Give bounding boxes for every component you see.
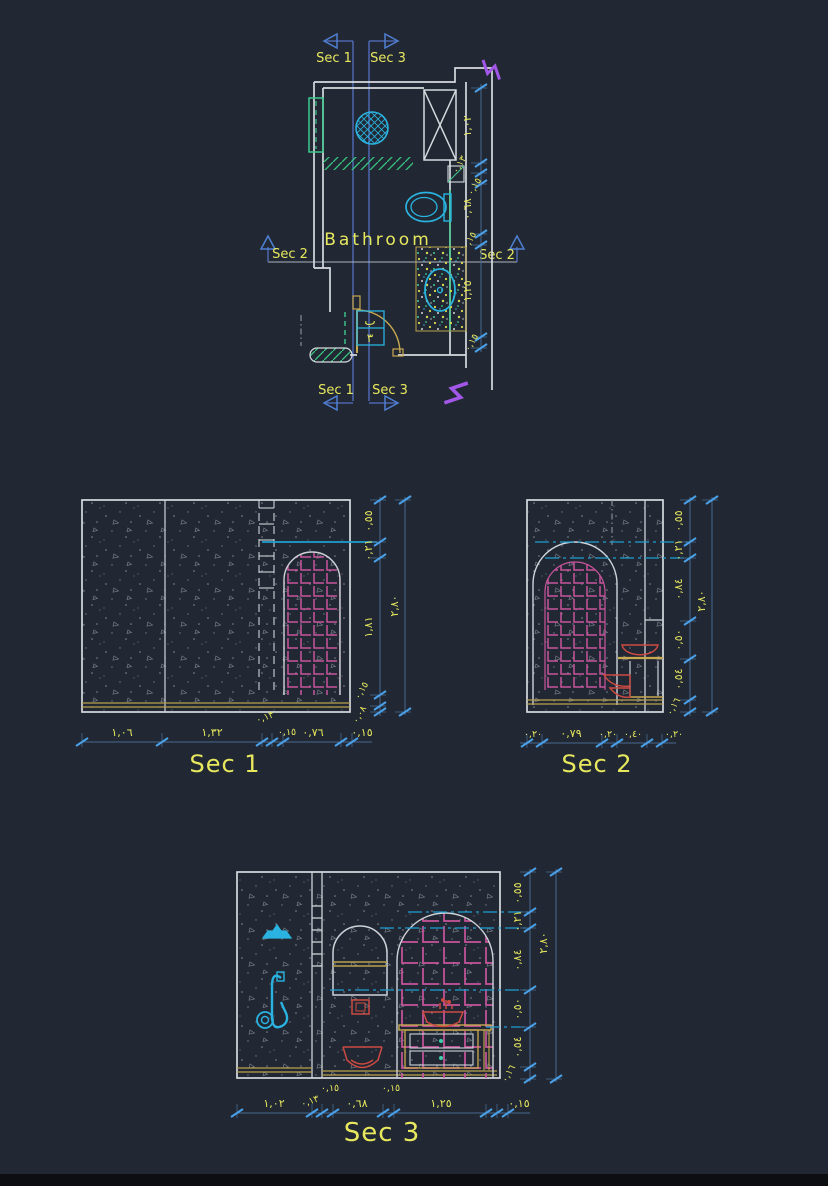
sec1-dim: ٠,١٥ — [351, 726, 372, 739]
drawer-knob — [439, 1056, 443, 1060]
sec2-dim: ٠,٥٤ — [672, 668, 685, 689]
duct-shaft — [424, 90, 456, 160]
toilet — [406, 193, 451, 222]
sec3-dim: ٠,٢١ — [511, 910, 524, 931]
sec2-dim: ٠,٤٠ — [624, 729, 642, 740]
sec2-dim: ٠,٢٠ — [524, 729, 542, 740]
sec3-dim: ٠,١٥ — [382, 1083, 400, 1094]
sec2-arch-tiles — [545, 562, 605, 690]
sec1-dim: ٠,٢١ — [362, 539, 375, 560]
sec3-dim: ١,٠٢ — [263, 1097, 284, 1110]
sec1-right-dimension-chain: ٠,٥٥ ٠,٢١ ١,٨١ ٠,١٥ ٠,٠٨ ٢,٨٠ — [350, 496, 411, 725]
sec1-arch-tiles — [284, 552, 340, 695]
bathroom-drawing: Sec 1 Sec 3 Sec 1 Sec 3 Sec 2 Sec 2 — [0, 0, 828, 1186]
sec3-dim: ٠,٨٤ — [511, 949, 524, 970]
sec1-marker-label-bottom: Sec 1 — [318, 383, 354, 398]
sec2-dim: ٠,٥٥ — [672, 510, 685, 531]
sec3-marker-label-top: Sec 3 — [370, 51, 406, 66]
taskbar-strip — [0, 1174, 828, 1186]
sec2-right-dimension-chain: ٠,٥٥ ٠,٢١ ٠,٨٤ ٠,٥٠ ٠,٥٤ ٠,١٦ ٢,٨٠ — [664, 496, 718, 717]
sec1-dim: ٠,٠٨ — [350, 704, 369, 725]
door-tag-number: ٣ — [367, 331, 374, 345]
sec3-dim: ٠,١٦ — [499, 1063, 518, 1084]
sec2-dim: ٠,٨٤ — [672, 578, 685, 599]
sec3-dim: ٠,٥٥ — [511, 882, 524, 903]
sec3-dim-total: ٢,٨٠ — [537, 932, 550, 953]
sec3-dim: ٠,١٥ — [508, 1097, 529, 1110]
sec1-dim: ٠,٧٦ — [302, 726, 323, 739]
sec3-bottom-dimension-chain: ١,٠٢ ٠,١٣ ٠,١٥ ٠,٦٨ ٠,١٥ ١,٢٥ ٠,١٥ — [231, 1083, 530, 1118]
door — [353, 296, 403, 356]
sec1-marker-label-top: Sec 1 — [316, 51, 352, 66]
sec2-dim: ٠,٢١ — [672, 539, 685, 560]
sec1-dim: ٠,١٥ — [278, 727, 296, 738]
sec1-title: Sec 1 — [189, 750, 260, 778]
sec2-dim-total: ٢,٨٠ — [695, 590, 708, 611]
cad-drawing-canvas[interactable]: Sec 1 Sec 3 Sec 1 Sec 3 Sec 2 Sec 2 — [0, 0, 828, 1186]
sec2-dim: ٠,٢٠ — [599, 729, 617, 740]
sec1-dim: ٠,٥٥ — [362, 510, 375, 531]
plan-dim: ١,٠٢ — [461, 115, 474, 136]
shower-partition-hatch — [323, 157, 413, 170]
threshold-step — [310, 312, 352, 362]
sec3-dim: ١,٢٥ — [430, 1097, 451, 1110]
sec2-title: Sec 2 — [561, 750, 632, 778]
door-tag-letter: ب — [364, 314, 375, 328]
plan-dim: ١,٢٥ — [461, 280, 474, 301]
sec2-marker-label-right: Sec 2 — [479, 248, 515, 263]
sec2-bottom-dimension-chain: ٠,٢٠ ٠,٧٩ ٠,٢٠ ٠,٤٠ ٠,٢٠ — [520, 727, 683, 748]
drawer-knob — [439, 1039, 443, 1043]
sec2-dim: ٠,٥٠ — [672, 629, 685, 650]
sec3-marker-label-bottom: Sec 3 — [372, 383, 408, 398]
sec1-bottom-dimension-chain: ١,٠٦ ١,٣٢ ٠,١٣ ٠,١٥ ٠,٧٦ ٠,١٥ — [76, 709, 373, 747]
sec2-dim: ٠,٧٩ — [560, 727, 581, 740]
sec3-elevation: ٠,٥٥ ٠,٢١ ٠,٨٤ ٠,٥٠ ٠,٥٤ ٠,١٦ ٢,٨٠ ١,٠٢ … — [231, 868, 562, 1148]
sec2-marker-label-left: Sec 2 — [272, 247, 308, 262]
sec1-dim: ١,٨١ — [362, 616, 375, 637]
sec3-title: Sec 3 — [344, 1118, 421, 1148]
sec1-elevation: ٠,٥٥ ٠,٢١ ١,٨١ ٠,١٥ ٠,٠٨ ٢,٨٠ ١,٠٦ ١,٣٢ … — [76, 496, 411, 778]
sec3-dim: ٠,٦٨ — [346, 1097, 367, 1110]
sec1-dim: ٠,١٥ — [352, 680, 371, 701]
sec1-dim: ١,٣٢ — [201, 726, 222, 739]
sec1-dim-total: ٢,٨٠ — [388, 595, 401, 616]
sec3-dim: ٠,٥٠ — [511, 998, 524, 1019]
sec3-dim: ٠,١٥ — [321, 1083, 339, 1094]
plan-dim: ٠,٦٨ — [461, 198, 474, 219]
sec3-dim: ٠,١٣ — [300, 1093, 321, 1110]
sec1-dim: ١,٠٦ — [111, 726, 132, 739]
sec2-dim: ٠,٢٠ — [665, 729, 683, 740]
shower-drain — [356, 112, 388, 144]
sec2-elevation: ٠,٥٥ ٠,٢١ ٠,٨٤ ٠,٥٠ ٠,٥٤ ٠,١٦ ٢,٨٠ ٠,٢٠ … — [520, 496, 718, 778]
wall-break-symbol-bottom — [444, 383, 467, 403]
sec2-dim: ٠,١٦ — [664, 696, 683, 717]
window — [309, 98, 323, 152]
sec3-dim: ٠,٥٤ — [511, 1036, 524, 1057]
vanity-counter — [416, 247, 466, 331]
plan-view: Sec 1 Sec 3 Sec 1 Sec 3 Sec 2 Sec 2 — [261, 34, 524, 410]
sec3-right-dimension-chain: ٠,٥٥ ٠,٢١ ٠,٨٤ ٠,٥٠ ٠,٥٤ ٠,١٦ ٢,٨٠ — [499, 868, 562, 1084]
